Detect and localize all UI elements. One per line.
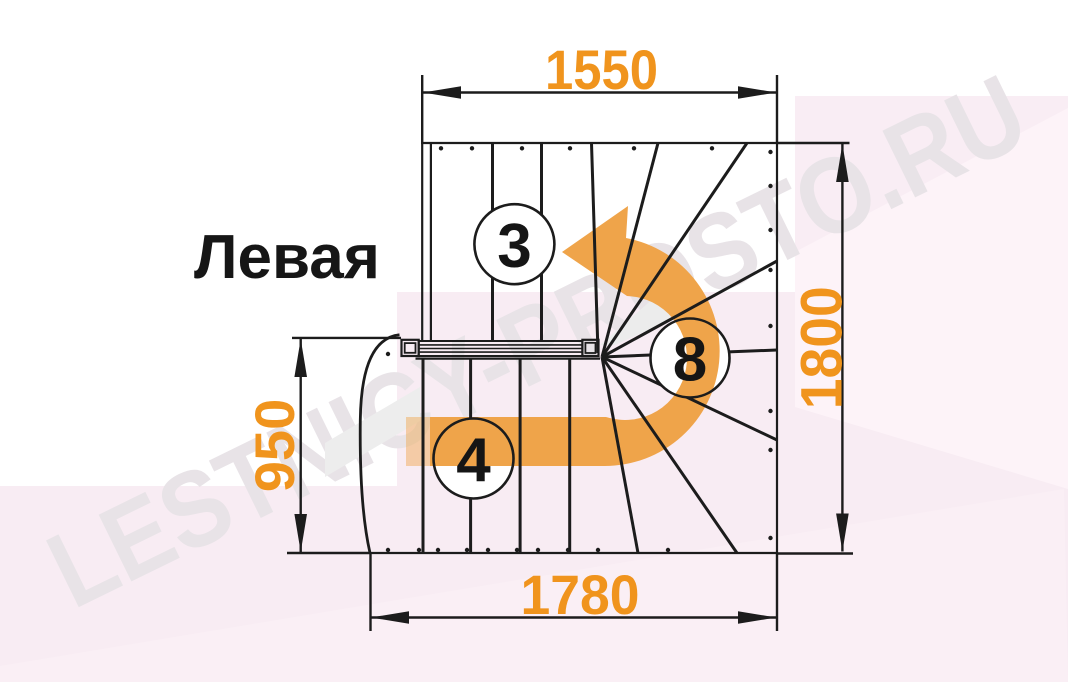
svg-text:1550: 1550 [545,38,658,101]
svg-text:1780: 1780 [521,563,640,626]
svg-text:Левая: Левая [194,223,380,292]
svg-text:4: 4 [456,426,491,495]
svg-text:8: 8 [673,326,707,395]
svg-text:1800: 1800 [790,286,855,409]
svg-text:950: 950 [243,399,306,492]
svg-text:3: 3 [497,212,531,281]
